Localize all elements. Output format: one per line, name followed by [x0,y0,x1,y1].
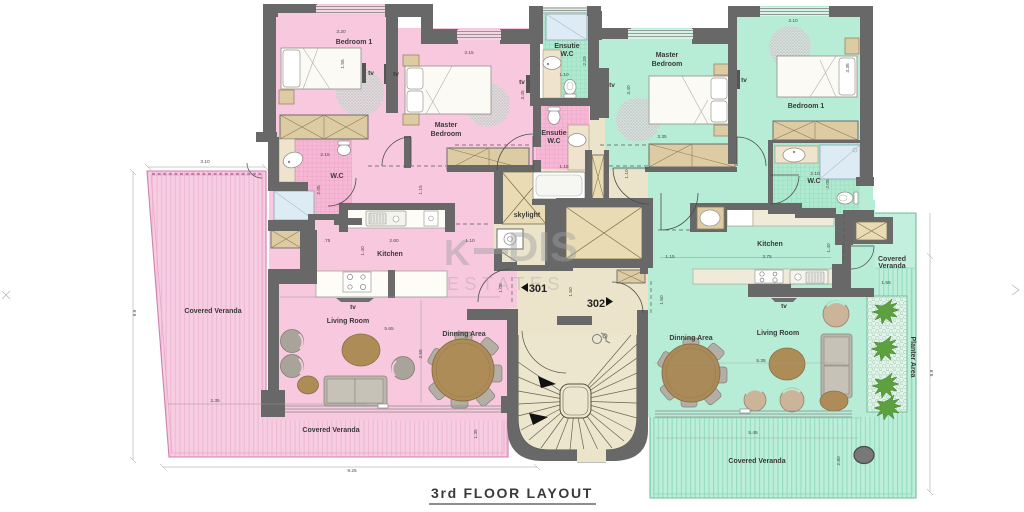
svg-text:5.35: 5.35 [756,358,766,364]
svg-text:W.C: W.C [330,173,343,180]
svg-text:DIS: DIS [508,223,578,270]
svg-text:tv: tv [519,79,525,86]
svg-text:1.35: 1.35 [473,429,479,439]
svg-text:2.20: 2.20 [582,56,588,66]
svg-text:Ensutie: Ensutie [554,43,579,50]
svg-text:Bedroom: Bedroom [652,61,683,68]
svg-text:1.15: 1.15 [559,164,569,170]
svg-text:1.15: 1.15 [418,185,424,195]
svg-text:Bedroom: Bedroom [431,131,462,138]
svg-text:302: 302 [587,298,605,310]
svg-text:Master: Master [435,122,458,129]
svg-text:.75: .75 [324,238,331,244]
svg-text:2.05: 2.05 [316,185,322,195]
svg-text:1.40: 1.40 [360,246,366,256]
svg-text:Kitchen: Kitchen [377,251,403,258]
svg-text:Ensutie: Ensutie [541,130,566,137]
svg-text:3.10: 3.10 [200,159,210,165]
svg-text:Bedroom 1: Bedroom 1 [788,103,825,110]
svg-text:2.15: 2.15 [320,152,330,158]
svg-text:3.15: 3.15 [464,50,474,56]
svg-text:301: 301 [529,283,547,295]
svg-text:2.60: 2.60 [389,238,399,244]
svg-text:1.50: 1.50 [659,295,665,305]
svg-text:1.10: 1.10 [559,72,569,78]
svg-text:5.65: 5.65 [384,326,394,332]
svg-text:3rd FLOOR LAYOUT: 3rd FLOOR LAYOUT [431,485,593,501]
svg-text:W.C: W.C [547,138,560,145]
svg-text:skylight: skylight [514,212,541,219]
svg-text:9.9: 9.9 [929,369,935,376]
svg-text:Kitchen: Kitchen [757,241,783,248]
svg-text:5.45: 5.45 [748,430,758,436]
svg-text:Living Room: Living Room [327,318,369,325]
svg-text:tv: tv [368,70,374,77]
svg-text:2.05: 2.05 [825,179,831,189]
svg-text:Covered Veranda: Covered Veranda [184,308,241,315]
svg-text:2.35: 2.35 [210,398,220,404]
svg-text:3.40: 3.40 [626,85,632,95]
svg-text:3.20: 3.20 [336,29,346,35]
svg-text:tv: tv [609,82,615,89]
svg-text:3.35: 3.35 [657,134,667,140]
svg-text:9.9: 9.9 [132,309,138,316]
svg-text:Bedroom 1: Bedroom 1 [336,39,373,46]
svg-text:Master: Master [656,52,679,59]
svg-text:3.45: 3.45 [520,90,526,100]
svg-text:Covered: Covered [878,256,906,263]
svg-text:Veranda: Veranda [878,263,905,270]
svg-text:1.55: 1.55 [881,280,891,286]
svg-text:2.80: 2.80 [836,456,842,466]
svg-text:Dinning Area: Dinning Area [669,335,712,342]
svg-text:tv: tv [741,77,747,84]
svg-text:3.75: 3.75 [762,254,772,260]
svg-text:2.10: 2.10 [810,171,820,177]
svg-text:1.10: 1.10 [624,169,630,179]
svg-text:Planter Area: Planter Area [909,337,916,378]
svg-text:1.15: 1.15 [665,254,675,260]
svg-text:Dinning Area: Dinning Area [442,331,485,338]
svg-text:3.35: 3.35 [845,63,851,73]
svg-text:Living Room: Living Room [757,330,799,337]
svg-text:1.10: 1.10 [465,238,475,244]
svg-text:9.25: 9.25 [347,468,357,474]
svg-text:1.55: 1.55 [340,59,346,69]
svg-text:Covered Veranda: Covered Veranda [302,427,359,434]
svg-text:1.40: 1.40 [826,243,832,253]
svg-text:tv: tv [781,303,787,310]
svg-text:Covered Veranda: Covered Veranda [728,458,785,465]
svg-text:tv: tv [350,304,356,311]
svg-text:3.55: 3.55 [418,349,424,359]
svg-text:1.05: 1.05 [498,283,504,293]
svg-text:1.50: 1.50 [568,287,574,297]
svg-text:tv: tv [393,71,399,78]
svg-text:W.C: W.C [560,51,573,58]
svg-text:W.C: W.C [807,178,820,185]
svg-text:3.10: 3.10 [788,18,798,24]
